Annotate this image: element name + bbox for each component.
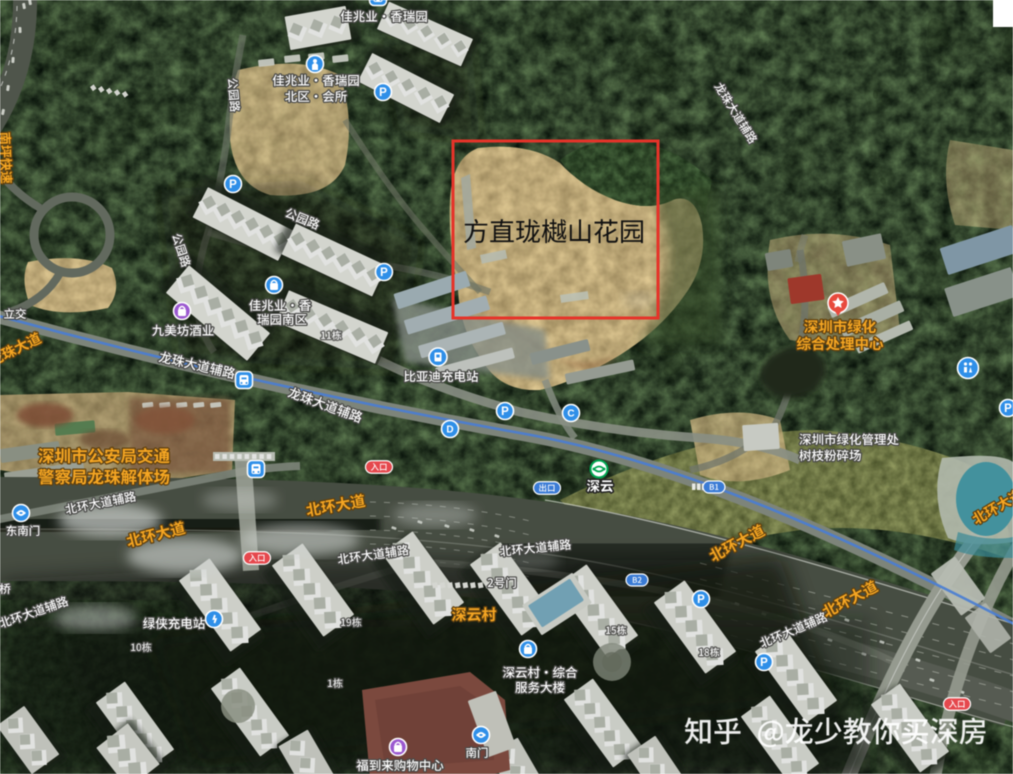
svg-text:P: P [380, 267, 388, 279]
svg-text:C: C [567, 409, 574, 420]
svg-text:P: P [697, 594, 705, 606]
svg-text:P: P [1004, 403, 1012, 415]
svg-text:P: P [501, 406, 509, 418]
svg-text:D: D [446, 425, 453, 436]
svg-text:P: P [760, 657, 768, 669]
svg-text:P: P [379, 87, 387, 99]
svg-text:P: P [229, 179, 237, 191]
